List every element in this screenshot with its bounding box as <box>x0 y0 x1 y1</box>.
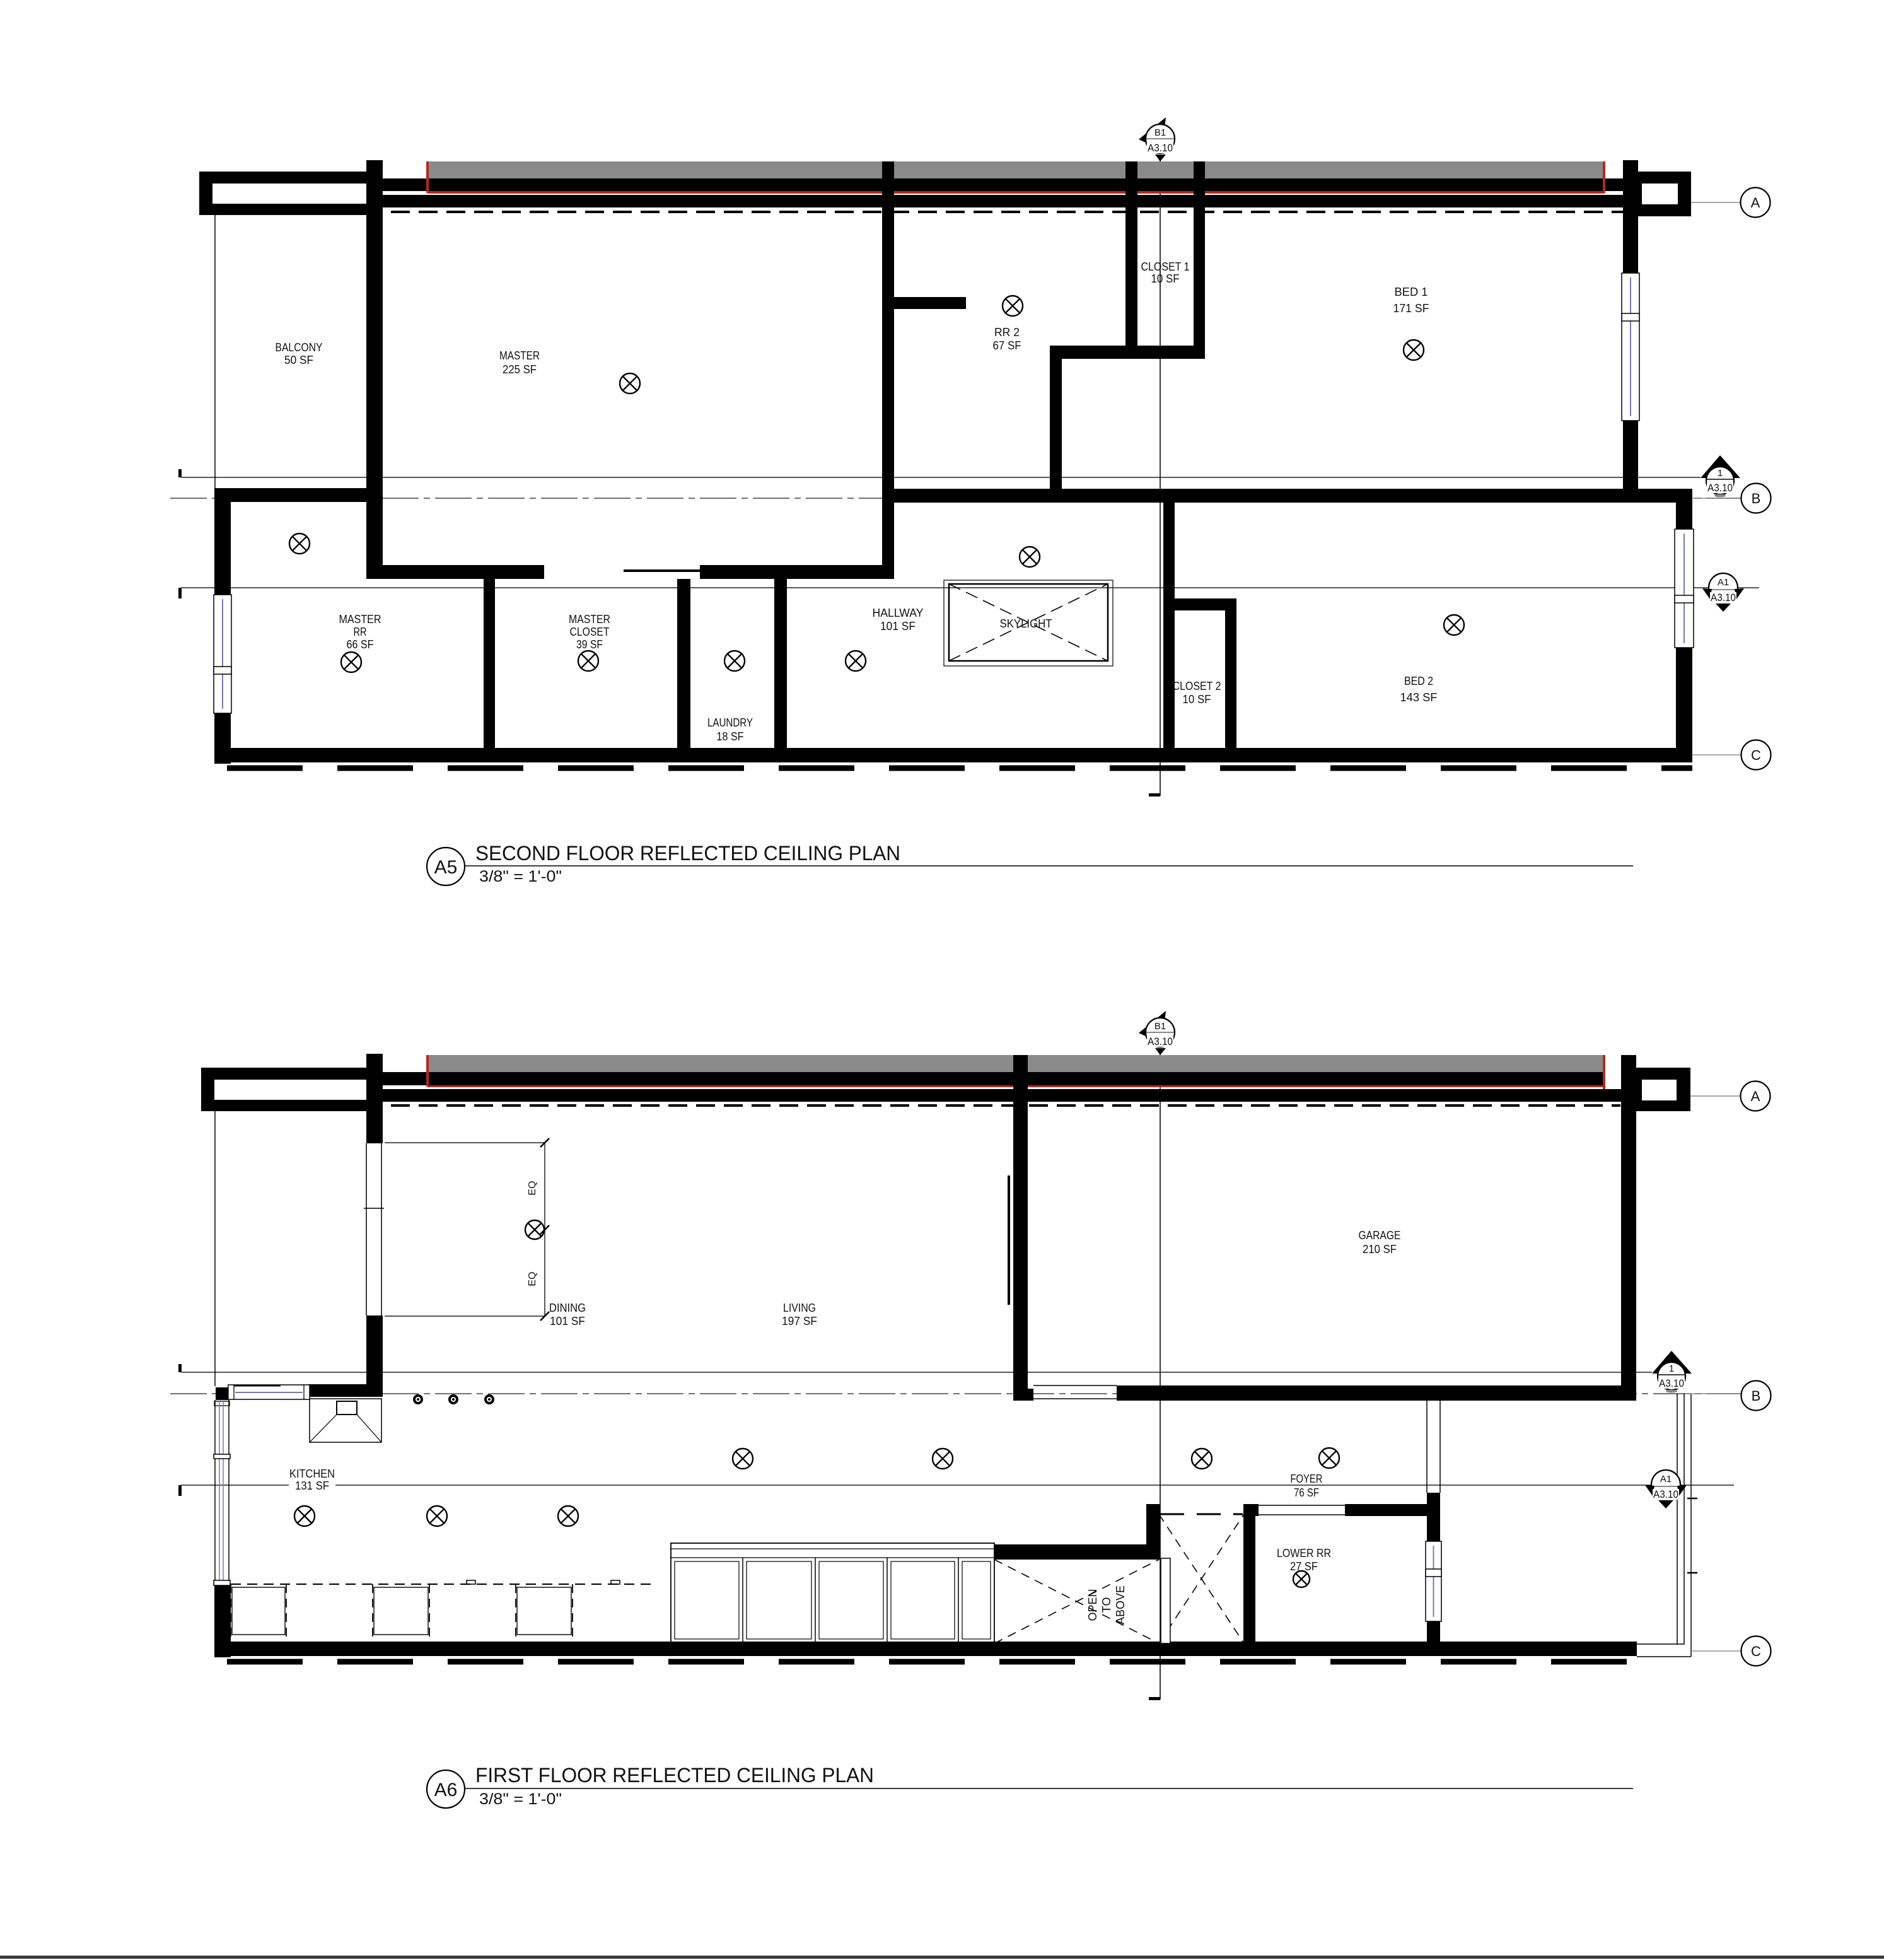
svg-text:A3.10: A3.10 <box>1711 592 1736 604</box>
svg-text:MASTER: MASTER <box>339 613 381 626</box>
svg-text:B1: B1 <box>1154 1021 1166 1032</box>
svg-text:C: C <box>1751 747 1761 763</box>
svg-text:C: C <box>1751 1643 1761 1659</box>
svg-text:3/8" = 1'-0": 3/8" = 1'-0" <box>479 868 562 885</box>
svg-text:SECOND FLOOR REFLECTED CEILING: SECOND FLOOR REFLECTED CEILING PLAN <box>475 842 900 865</box>
svg-text:EQ: EQ <box>527 1271 538 1286</box>
svg-text:225 SF: 225 SF <box>503 363 537 376</box>
svg-text:A1: A1 <box>1660 1474 1672 1485</box>
svg-text:A: A <box>1751 1088 1760 1104</box>
svg-text:39 SF: 39 SF <box>576 638 603 651</box>
svg-text:210 SF: 210 SF <box>1363 1243 1397 1256</box>
svg-text:BED 1: BED 1 <box>1395 286 1428 298</box>
svg-text:A3.10: A3.10 <box>1653 1488 1678 1500</box>
svg-text:131 SF: 131 SF <box>295 1479 329 1492</box>
svg-text:MASTER: MASTER <box>499 349 540 362</box>
svg-text:LOWER RR: LOWER RR <box>1277 1547 1331 1560</box>
svg-text:197 SF: 197 SF <box>782 1315 817 1327</box>
svg-text:A6: A6 <box>434 1780 458 1800</box>
svg-text:ABOVE: ABOVE <box>1114 1585 1127 1625</box>
svg-text:171 SF: 171 SF <box>1393 302 1429 315</box>
svg-text:76 SF: 76 SF <box>1294 1486 1319 1499</box>
svg-text:RR 2: RR 2 <box>994 326 1020 339</box>
svg-text:143 SF: 143 SF <box>1400 691 1438 704</box>
svg-text:LIVING: LIVING <box>783 1302 816 1314</box>
svg-text:EQ: EQ <box>527 1181 538 1195</box>
svg-text:LAUNDRY: LAUNDRY <box>707 716 753 729</box>
svg-text:27 SF: 27 SF <box>1290 1560 1318 1573</box>
svg-text:DINING: DINING <box>549 1302 586 1314</box>
svg-text:A3.10: A3.10 <box>1148 1035 1173 1047</box>
svg-text:FIRST FLOOR REFLECTED CEILING: FIRST FLOOR REFLECTED CEILING PLAN <box>475 1764 874 1787</box>
svg-text:CLOSET 1: CLOSET 1 <box>1141 260 1190 273</box>
svg-text:BALCONY: BALCONY <box>276 341 323 354</box>
svg-text:KITCHEN: KITCHEN <box>289 1467 335 1480</box>
svg-text:CLOSET: CLOSET <box>570 626 610 638</box>
svg-text:FOYER: FOYER <box>1291 1473 1323 1485</box>
svg-text:3/8" = 1'-0": 3/8" = 1'-0" <box>479 1790 562 1808</box>
svg-text:OPEN: OPEN <box>1086 1589 1099 1621</box>
svg-text:50 SF: 50 SF <box>284 354 313 366</box>
svg-text:A5: A5 <box>434 857 458 878</box>
svg-text:66 SF: 66 SF <box>347 638 374 651</box>
svg-text:RR: RR <box>354 626 367 638</box>
svg-text:B: B <box>1752 1388 1761 1404</box>
svg-text:101 SF: 101 SF <box>880 620 916 633</box>
svg-text:10 SF: 10 SF <box>1183 693 1211 706</box>
svg-text:GARAGE: GARAGE <box>1359 1229 1401 1242</box>
svg-text:TO: TO <box>1100 1597 1113 1613</box>
svg-text:CLOSET 2: CLOSET 2 <box>1173 680 1221 692</box>
svg-text:B1: B1 <box>1154 127 1166 138</box>
svg-text:67 SF: 67 SF <box>993 339 1021 352</box>
svg-text:A3.10: A3.10 <box>1659 1377 1684 1389</box>
svg-text:1: 1 <box>1718 468 1723 479</box>
svg-text:A1: A1 <box>1718 577 1729 588</box>
svg-text:B: B <box>1752 491 1761 506</box>
svg-text:SKYLIGHT: SKYLIGHT <box>1000 617 1052 630</box>
svg-text:A: A <box>1751 195 1760 211</box>
svg-text:101 SF: 101 SF <box>550 1315 585 1327</box>
svg-text:A3.10: A3.10 <box>1148 142 1173 154</box>
svg-text:HALLWAY: HALLWAY <box>873 607 924 619</box>
svg-text:MASTER: MASTER <box>569 613 610 626</box>
svg-text:1: 1 <box>1669 1363 1674 1374</box>
svg-text:A3.10: A3.10 <box>1707 482 1733 494</box>
svg-text:10 SF: 10 SF <box>1151 272 1180 285</box>
svg-text:18 SF: 18 SF <box>717 730 744 743</box>
svg-text:BED 2: BED 2 <box>1404 675 1433 687</box>
